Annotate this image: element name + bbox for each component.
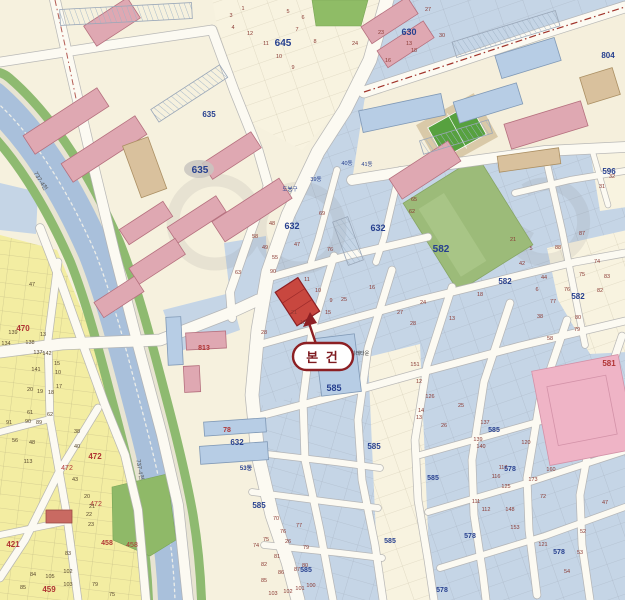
map-label-27: 27 <box>425 7 431 13</box>
map-label-7: 7 <box>295 27 298 33</box>
map-label-582: 582 <box>433 244 450 255</box>
map-label-141: 141 <box>31 367 40 373</box>
map-label-645: 645 <box>275 38 292 49</box>
map-label-585: 585 <box>427 475 439 482</box>
map-label-585: 585 <box>326 383 341 393</box>
map-label-578: 578 <box>553 549 565 556</box>
building-red-small <box>46 510 72 523</box>
map-label-6: 6 <box>535 287 538 293</box>
map-label-87: 87 <box>579 231 585 237</box>
map-label-137: 137 <box>33 350 42 356</box>
school-block-inner <box>547 375 617 445</box>
map-label-65: 65 <box>411 197 417 203</box>
map-label-44: 44 <box>541 275 547 281</box>
map-label-10: 10 <box>276 54 282 60</box>
map-label-85: 85 <box>20 585 26 591</box>
map-label-15: 15 <box>54 361 60 367</box>
map-label-69: 69 <box>319 211 325 217</box>
map-label-139: 139 <box>8 330 17 336</box>
map-label-19: 19 <box>37 389 43 395</box>
map-label-87: 87 <box>294 567 300 573</box>
map-label-83: 83 <box>65 551 71 557</box>
map-label-90: 90 <box>270 269 276 275</box>
map-label-16: 16 <box>385 58 391 64</box>
map-label-105: 105 <box>45 574 54 580</box>
map-label-18: 18 <box>411 48 417 54</box>
map-canvas[interactable]: 6456306326326325825825825968045855855855… <box>0 0 625 600</box>
map-label-28: 28 <box>410 321 416 327</box>
map-label-25: 25 <box>458 403 464 409</box>
map-label-84: 84 <box>30 572 36 578</box>
map-label-630: 630 <box>401 27 416 37</box>
building-813 <box>183 366 200 393</box>
map-label-15: 15 <box>325 310 331 316</box>
map-label-470: 470 <box>16 324 30 333</box>
map-label-82: 82 <box>597 288 603 294</box>
map-label-138: 138 <box>25 340 34 346</box>
map-label-83: 83 <box>604 274 610 280</box>
map-label-76: 76 <box>327 247 333 253</box>
map-label-53동: 53동 <box>240 464 253 472</box>
map-label-63: 63 <box>235 270 241 276</box>
map-label-56: 56 <box>12 438 18 444</box>
map-label-101: 101 <box>295 586 304 592</box>
map-label-26: 26 <box>441 423 447 429</box>
map-label-11: 11 <box>304 277 310 283</box>
map-label-41동: 41동 <box>361 161 372 168</box>
map-label-14: 14 <box>418 408 424 414</box>
map-label-142: 142 <box>42 351 51 357</box>
map-label-116: 116 <box>492 474 501 480</box>
map-label-77: 77 <box>296 523 302 529</box>
map-label-160: 160 <box>546 467 555 473</box>
map-label-459: 459 <box>42 585 56 594</box>
map-label-79: 79 <box>92 582 98 588</box>
map-label-28: 28 <box>261 330 267 336</box>
map-label-578: 578 <box>436 587 448 594</box>
map-label-43: 43 <box>72 477 78 483</box>
subject-label: 본 건 <box>306 350 340 365</box>
map-label-585: 585 <box>252 501 266 510</box>
map-label-81: 81 <box>274 554 280 560</box>
map-label-9: 9 <box>291 65 294 71</box>
map-label-72: 72 <box>540 494 546 500</box>
map-label-6: 6 <box>301 15 304 21</box>
map-label-23: 23 <box>378 30 384 36</box>
map-label-113: 113 <box>24 459 33 465</box>
map-label-49: 49 <box>262 245 268 251</box>
map-label-102: 102 <box>283 589 292 595</box>
map-label-632: 632 <box>284 221 299 231</box>
map-label-18: 18 <box>48 390 54 396</box>
map-label-58: 58 <box>252 234 258 240</box>
map-label-173: 173 <box>528 477 537 483</box>
map-label-4: 4 <box>231 25 234 31</box>
map-label-24: 24 <box>420 300 426 306</box>
map-label-137: 137 <box>480 420 489 426</box>
map-label-48: 48 <box>29 440 35 446</box>
map-label-26: 26 <box>285 539 291 545</box>
map-label-10: 10 <box>315 288 321 294</box>
map-label-121: 121 <box>538 542 547 548</box>
cadastral-map: 6456306326326325825825825968045855855855… <box>0 0 625 600</box>
map-label-813: 813 <box>198 345 210 352</box>
map-label-77: 77 <box>550 299 556 305</box>
map-label-134: 134 <box>1 341 10 347</box>
map-label-38: 38 <box>74 429 80 435</box>
map-label-79: 79 <box>574 327 580 333</box>
map-label-117: 117 <box>499 465 508 471</box>
map-label-47: 47 <box>294 242 300 248</box>
map-label-75: 75 <box>263 537 269 543</box>
map-label-32: 32 <box>609 174 615 180</box>
map-label-421: 421 <box>6 540 20 549</box>
map-label-89: 89 <box>36 420 42 426</box>
map-label-62: 62 <box>409 209 415 215</box>
map-label-582: 582 <box>571 292 585 301</box>
map-label-139: 139 <box>473 437 482 443</box>
map-label-578: 578 <box>464 533 476 540</box>
map-label-78: 78 <box>223 427 231 434</box>
map-label-103: 103 <box>63 582 72 588</box>
map-label-42: 42 <box>519 261 525 267</box>
map-label-635: 635 <box>192 165 209 176</box>
map-label-582: 582 <box>498 277 512 286</box>
map-label-58: 58 <box>547 336 553 342</box>
map-label-18: 18 <box>477 292 483 298</box>
map-label-16: 16 <box>369 285 375 291</box>
map-label-5: 5 <box>529 246 532 252</box>
map-label-153: 153 <box>510 525 519 531</box>
map-label-21: 21 <box>510 237 516 243</box>
map-label-76: 76 <box>280 529 286 535</box>
map-label-47: 47 <box>602 500 608 506</box>
map-label-61: 61 <box>27 410 33 416</box>
map-label-88: 88 <box>555 245 561 251</box>
map-label-31: 31 <box>599 184 605 190</box>
map-label-804: 804 <box>601 51 615 60</box>
map-label-90: 90 <box>25 419 31 425</box>
map-label-635: 635 <box>202 110 216 119</box>
map-label-48: 48 <box>269 221 275 227</box>
map-label-120: 120 <box>521 440 530 446</box>
map-label-5: 5 <box>286 9 289 15</box>
map-label-585: 585 <box>367 442 381 451</box>
map-label-102: 102 <box>63 569 72 575</box>
map-label-20: 20 <box>84 494 90 500</box>
map-label-21: 21 <box>89 504 95 510</box>
map-label-86: 86 <box>278 570 284 576</box>
map-label-23: 23 <box>88 522 94 528</box>
map-label-9: 9 <box>329 298 332 304</box>
map-label-111: 111 <box>472 499 480 505</box>
map-label-38: 38 <box>537 314 543 320</box>
map-label-112: 112 <box>482 507 491 513</box>
map-label-25: 25 <box>341 297 347 303</box>
map-label-17: 17 <box>56 384 62 390</box>
map-label-91: 91 <box>6 420 12 426</box>
map-label-85: 85 <box>261 578 267 584</box>
map-label-47: 47 <box>29 282 35 288</box>
map-label-12: 12 <box>416 379 422 385</box>
map-label-140: 140 <box>476 444 485 450</box>
map-label-80: 80 <box>302 563 308 569</box>
map-label-30: 30 <box>439 33 445 39</box>
map-label-21: 21 <box>291 310 297 316</box>
map-label-24: 24 <box>352 41 358 47</box>
map-label-40: 40 <box>74 444 80 450</box>
map-label-13: 13 <box>416 415 422 421</box>
map-label-632: 632 <box>230 438 244 447</box>
map-label-11: 11 <box>263 41 269 47</box>
apartment-slab <box>166 317 183 366</box>
map-label-40동: 40동 <box>341 160 352 167</box>
map-label-13: 13 <box>40 332 46 338</box>
map-label-581: 581 <box>602 359 616 368</box>
map-label-12: 12 <box>247 31 253 37</box>
map-label-585: 585 <box>488 427 500 434</box>
map-label-75: 75 <box>579 272 585 278</box>
map-label-3: 3 <box>229 13 232 19</box>
map-label-458: 458 <box>126 542 138 549</box>
map-label-151: 151 <box>410 362 419 368</box>
map-label-55: 55 <box>272 255 278 261</box>
map-label-458: 458 <box>101 540 113 547</box>
map-label-82: 82 <box>261 562 267 568</box>
map-label-54: 54 <box>564 569 570 575</box>
map-label-53: 53 <box>577 550 583 556</box>
map-label-10: 10 <box>55 370 61 376</box>
map-label-1: 1 <box>241 6 244 12</box>
map-label-126: 126 <box>425 394 434 400</box>
map-label-27: 27 <box>397 310 403 316</box>
map-label-75: 75 <box>109 592 115 598</box>
map-label-도봉구: 도봉구 <box>282 186 297 193</box>
map-label-62: 62 <box>47 412 53 418</box>
map-label-472: 472 <box>88 452 102 461</box>
map-label-70: 70 <box>273 516 279 522</box>
map-label-13: 13 <box>406 41 412 47</box>
map-label-125: 125 <box>501 484 510 490</box>
map-label-76: 76 <box>564 287 570 293</box>
map-label-632: 632 <box>370 223 385 233</box>
map-label-8: 8 <box>313 39 316 45</box>
map-label-472: 472 <box>61 465 73 472</box>
map-label-74: 74 <box>594 259 600 265</box>
map-label-585: 585 <box>384 538 396 545</box>
map-label-39동: 39동 <box>310 176 321 183</box>
map-label-20: 20 <box>27 387 33 393</box>
map-label-13: 13 <box>449 316 455 322</box>
map-label-79: 79 <box>303 545 309 551</box>
map-label-22: 22 <box>86 512 92 518</box>
map-label-100: 100 <box>306 583 315 589</box>
map-label-80: 80 <box>575 315 581 321</box>
park-top <box>312 0 368 26</box>
map-label-103: 103 <box>268 591 277 597</box>
map-label-74: 74 <box>253 543 259 549</box>
map-label-148: 148 <box>505 507 514 513</box>
map-label-52: 52 <box>580 529 586 535</box>
